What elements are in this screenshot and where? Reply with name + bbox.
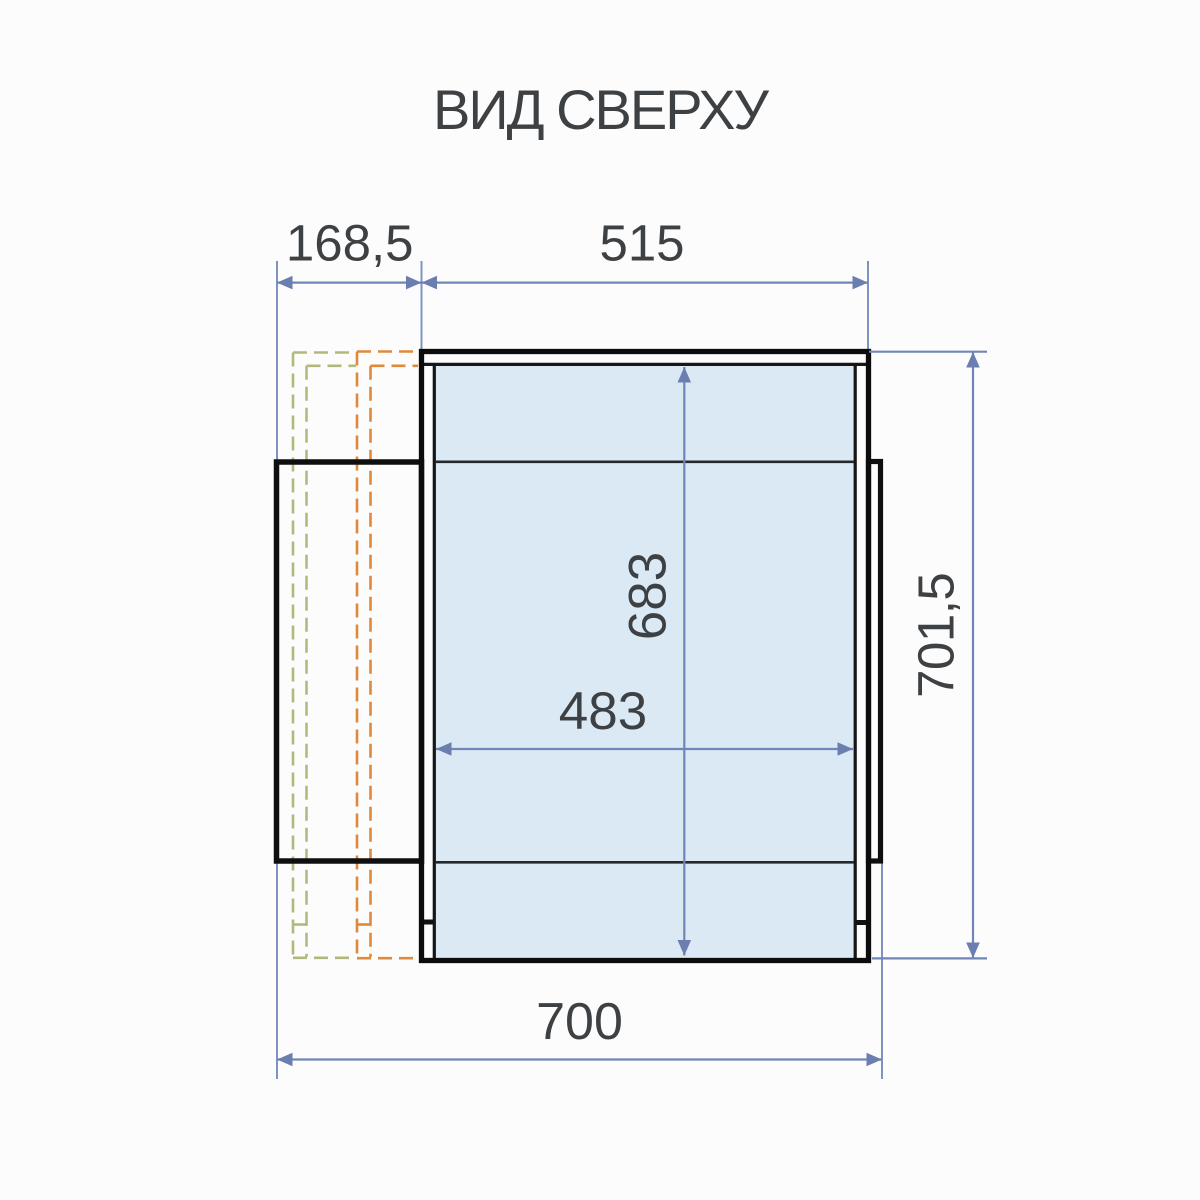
svg-text:683: 683 xyxy=(619,552,678,640)
svg-text:483: 483 xyxy=(559,682,647,741)
svg-text:168,5: 168,5 xyxy=(286,214,414,271)
svg-text:700: 700 xyxy=(536,993,623,1051)
svg-text:ВИД СВЕРХУ: ВИД СВЕРХУ xyxy=(433,78,769,141)
svg-text:701,5: 701,5 xyxy=(908,573,965,698)
svg-text:515: 515 xyxy=(599,214,684,271)
